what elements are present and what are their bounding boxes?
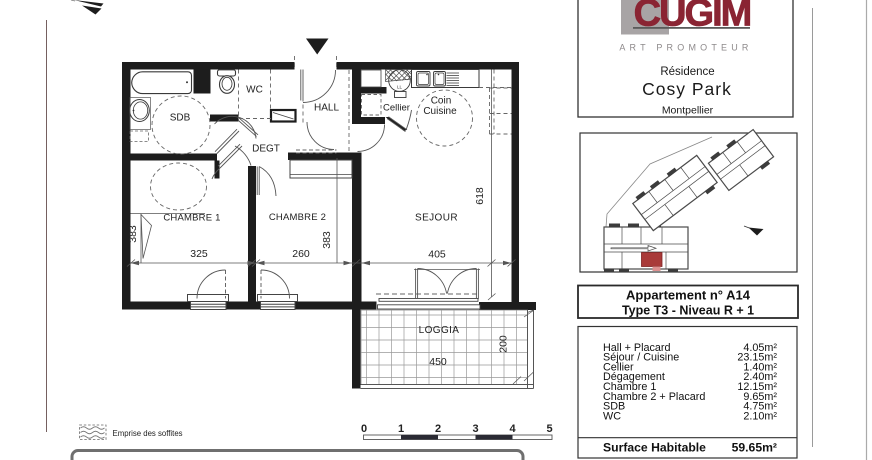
svg-text:DEGT: DEGT xyxy=(252,144,280,155)
svg-text:Surface Habitable: Surface Habitable xyxy=(603,441,706,455)
svg-text:4: 4 xyxy=(509,423,516,435)
svg-text:SDB: SDB xyxy=(170,113,191,124)
svg-text:Appartement n° A14: Appartement n° A14 xyxy=(626,288,751,303)
svg-text:2: 2 xyxy=(435,423,441,435)
svg-text:LOGGIA: LOGGIA xyxy=(419,325,460,336)
svg-text:Cuisine: Cuisine xyxy=(423,106,457,117)
svg-text:WC: WC xyxy=(603,410,621,422)
svg-text:Cellier: Cellier xyxy=(383,103,410,114)
svg-text:450: 450 xyxy=(429,356,447,368)
svg-text:618: 618 xyxy=(474,187,486,205)
svg-text:SEJOUR: SEJOUR xyxy=(415,213,458,224)
svg-text:LL: LL xyxy=(397,85,403,90)
svg-text:405: 405 xyxy=(428,249,446,261)
svg-text:Cosy Park: Cosy Park xyxy=(642,79,732,99)
svg-text:Coin: Coin xyxy=(431,96,452,107)
svg-text:59.65m²: 59.65m² xyxy=(732,441,777,455)
svg-text:CHAMBRE 1: CHAMBRE 1 xyxy=(163,213,220,224)
svg-text:Montpellier: Montpellier xyxy=(662,105,714,117)
svg-text:325: 325 xyxy=(190,248,208,260)
svg-text:WC: WC xyxy=(246,85,263,96)
svg-text:Résidence: Résidence xyxy=(660,66,714,78)
svg-text:0: 0 xyxy=(361,423,367,435)
svg-text:2.10m²: 2.10m² xyxy=(743,410,777,422)
svg-text:Type T3 - Niveau R + 1: Type T3 - Niveau R + 1 xyxy=(622,304,754,318)
svg-text:Emprise des soffites: Emprise des soffites xyxy=(113,429,183,438)
svg-text:383: 383 xyxy=(321,231,333,249)
svg-text:1: 1 xyxy=(398,423,404,435)
svg-text:CHAMBRE 2: CHAMBRE 2 xyxy=(269,212,326,223)
svg-text:3: 3 xyxy=(472,423,478,435)
svg-text:200: 200 xyxy=(498,335,510,353)
svg-text:ART PROMOTEUR: ART PROMOTEUR xyxy=(619,43,752,53)
svg-text:HALL: HALL xyxy=(314,103,339,114)
svg-text:CUGIM: CUGIM xyxy=(634,0,751,35)
svg-text:383: 383 xyxy=(127,225,139,243)
svg-text:260: 260 xyxy=(292,248,310,260)
svg-text:5: 5 xyxy=(546,423,552,435)
